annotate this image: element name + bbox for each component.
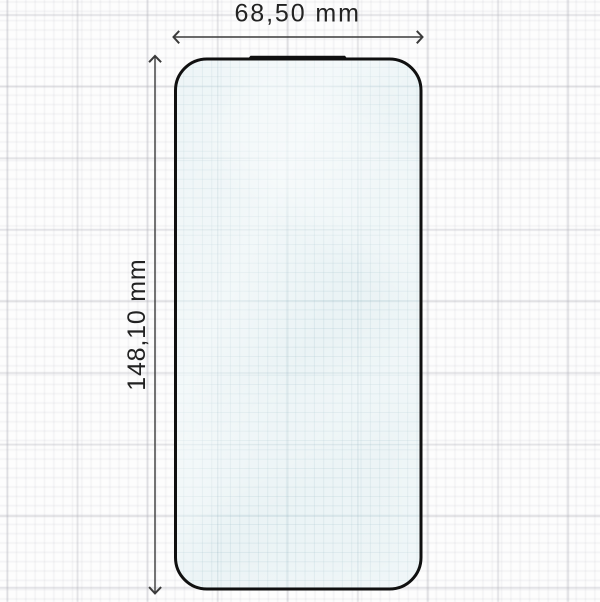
svg-text:68,50 mm: 68,50 mm (234, 0, 359, 28)
svg-text:148,10 mm: 148,10 mm (123, 259, 151, 391)
